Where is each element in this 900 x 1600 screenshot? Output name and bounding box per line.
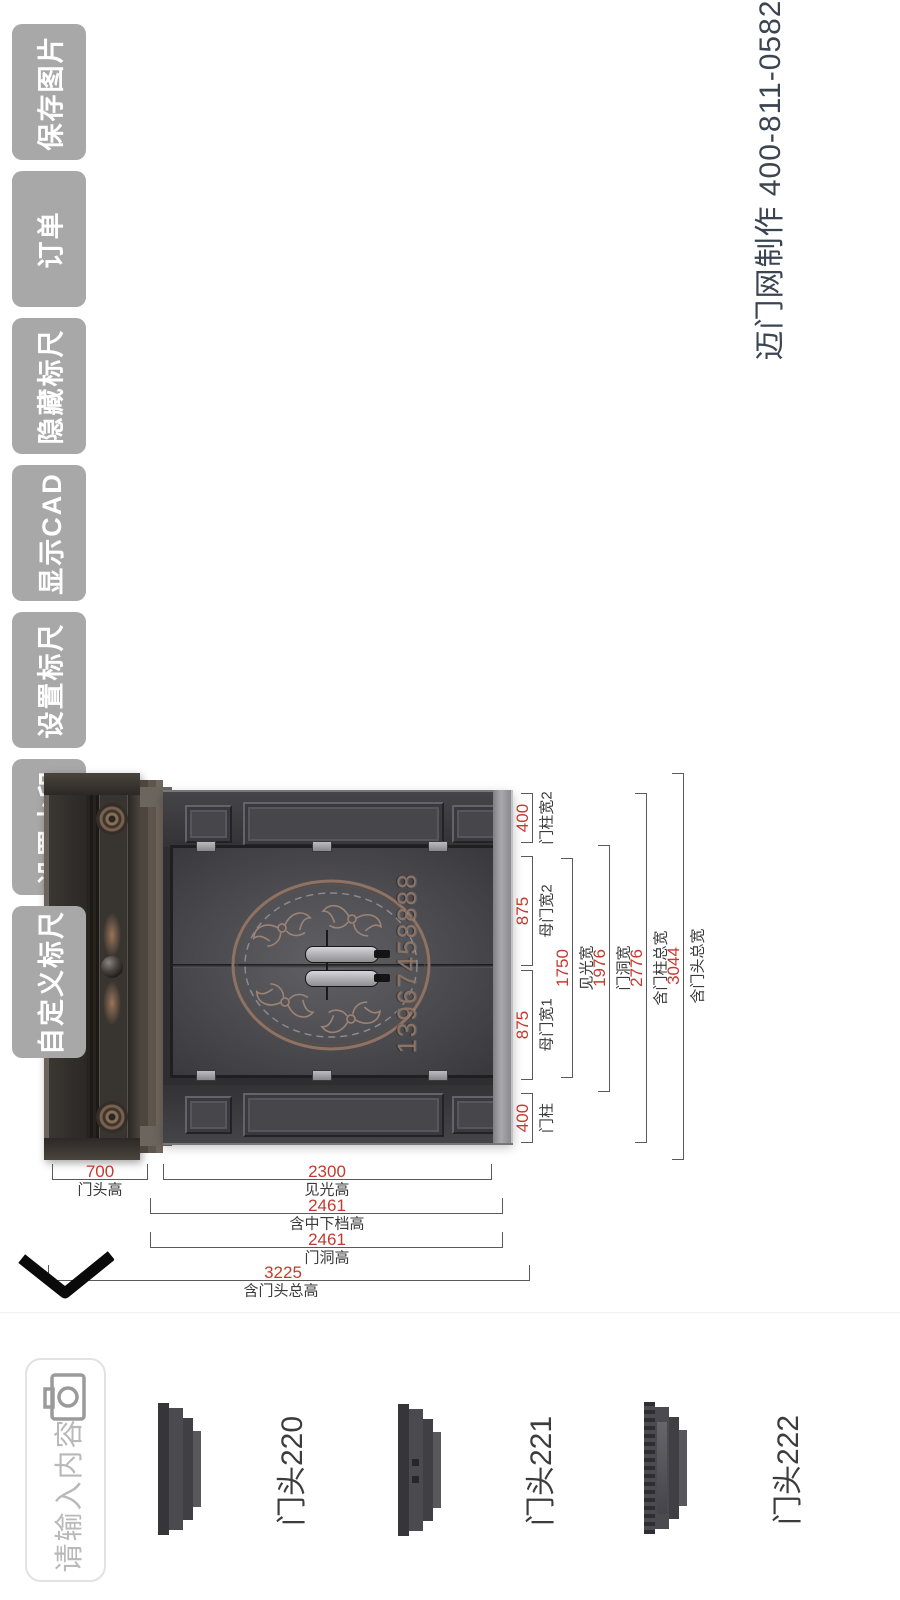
hinge <box>196 1070 216 1081</box>
dim-value: 1976 <box>590 949 610 987</box>
medallion-ornament <box>230 878 432 1052</box>
door-head-thumbnail <box>398 1404 442 1536</box>
door-head-carved-strip <box>99 773 128 1160</box>
dim-label: 含门头总高 <box>243 1280 318 1301</box>
cornice-step <box>140 787 172 807</box>
pillar-panel <box>185 805 232 843</box>
back-chevron-icon[interactable] <box>18 1250 114 1306</box>
button-set-ruler[interactable]: 设置标尺 <box>12 612 86 748</box>
pillar-panel <box>243 802 444 846</box>
door-leaves <box>170 845 500 1078</box>
button-label: 隐藏标尺 <box>30 328 69 444</box>
rosette-ornament <box>96 803 128 835</box>
door-head-knob <box>101 956 123 978</box>
button-set-watermark[interactable]: 设置水印 <box>12 759 86 895</box>
carved-flourish <box>103 981 121 1025</box>
button-label: 订单 <box>30 210 69 268</box>
dim-label: 母门宽2 <box>536 884 557 937</box>
button-label: 设置标尺 <box>30 622 69 738</box>
door-pillar <box>163 790 513 847</box>
hinge <box>428 841 448 852</box>
door-pillar <box>163 1085 513 1145</box>
door-frame-edge <box>493 790 513 1143</box>
hinge <box>428 1070 448 1081</box>
button-label: 自定义标尺 <box>30 910 69 1055</box>
button-label: 显示CAD <box>30 472 69 595</box>
handle-hook <box>374 974 390 982</box>
dim-label: 门柱宽2 <box>536 791 557 844</box>
button-save-image[interactable]: 保存图片 <box>12 24 86 160</box>
app-screen: 保存图片 订单 隐藏标尺 显示CAD 设置标尺 设置水印 迈门网制作 400-8… <box>0 0 900 1600</box>
door-head-trim <box>128 773 140 1160</box>
button-order[interactable]: 订单 <box>12 171 86 307</box>
button-label: 设置水印 <box>30 769 69 885</box>
button-hide-ruler[interactable]: 隐藏标尺 <box>12 318 86 454</box>
bottom-bar: 请输入内容 门头220 门头221 门头222 <box>0 1312 900 1600</box>
dim-label: 门头高 <box>77 1179 122 1200</box>
hinge <box>196 841 216 852</box>
watermark-text: 迈门网制作 400-811-0582 <box>745 0 789 360</box>
phone-engraving: 13967458888 <box>392 872 423 1053</box>
door-head-thumbnail <box>644 1402 688 1534</box>
dim-value: 400 <box>513 804 533 832</box>
button-show-cad[interactable]: 显示CAD <box>12 465 86 601</box>
item-label: 门头222 <box>763 1415 807 1525</box>
list-item[interactable]: 门头220 <box>150 1398 330 1548</box>
door-head-end-cap <box>44 1138 140 1160</box>
pillar-panel <box>452 805 500 843</box>
dim-value: 875 <box>513 897 533 925</box>
pillar-panel <box>452 1096 500 1134</box>
dim-value: 400 <box>513 1104 533 1132</box>
rosette-ornament <box>96 1101 128 1133</box>
door-body <box>163 790 513 1143</box>
pillar-panel <box>185 1096 232 1134</box>
search-input[interactable]: 请输入内容 <box>25 1358 106 1582</box>
carved-flourish <box>103 913 121 957</box>
door-head-channel <box>87 773 99 1160</box>
button-custom-ruler[interactable]: 自定义标尺 <box>12 906 86 1058</box>
dim-value: 3044 <box>664 947 684 985</box>
door-head-cornice <box>140 780 163 1153</box>
pillar-panel <box>243 1093 444 1137</box>
door-handle <box>305 970 379 987</box>
dim-label: 含门头总宽 <box>687 928 708 1003</box>
dim-label: 门洞高 <box>304 1247 349 1268</box>
item-label: 门头220 <box>267 1416 311 1526</box>
hinge <box>312 1070 332 1081</box>
dim-value: 875 <box>513 1011 533 1039</box>
search-placeholder: 请输入内容 <box>46 1417 88 1572</box>
handle-hook <box>374 950 390 958</box>
handle-needle <box>326 930 328 1000</box>
dim-value: 2776 <box>627 949 647 987</box>
cornice-step <box>140 1126 172 1146</box>
list-item[interactable]: 门头221 <box>395 1398 575 1548</box>
door-head-thumbnail <box>158 1403 202 1535</box>
hinge <box>312 841 332 852</box>
dim-value: 1750 <box>553 949 573 987</box>
list-item[interactable]: 门头222 <box>640 1398 820 1548</box>
dim-label: 母门宽1 <box>536 998 557 1051</box>
leaf-seam <box>173 964 497 968</box>
dim-label: 门柱 <box>536 1103 557 1133</box>
item-label: 门头221 <box>516 1416 560 1526</box>
door-handle <box>305 946 379 963</box>
button-label: 保存图片 <box>30 34 69 150</box>
